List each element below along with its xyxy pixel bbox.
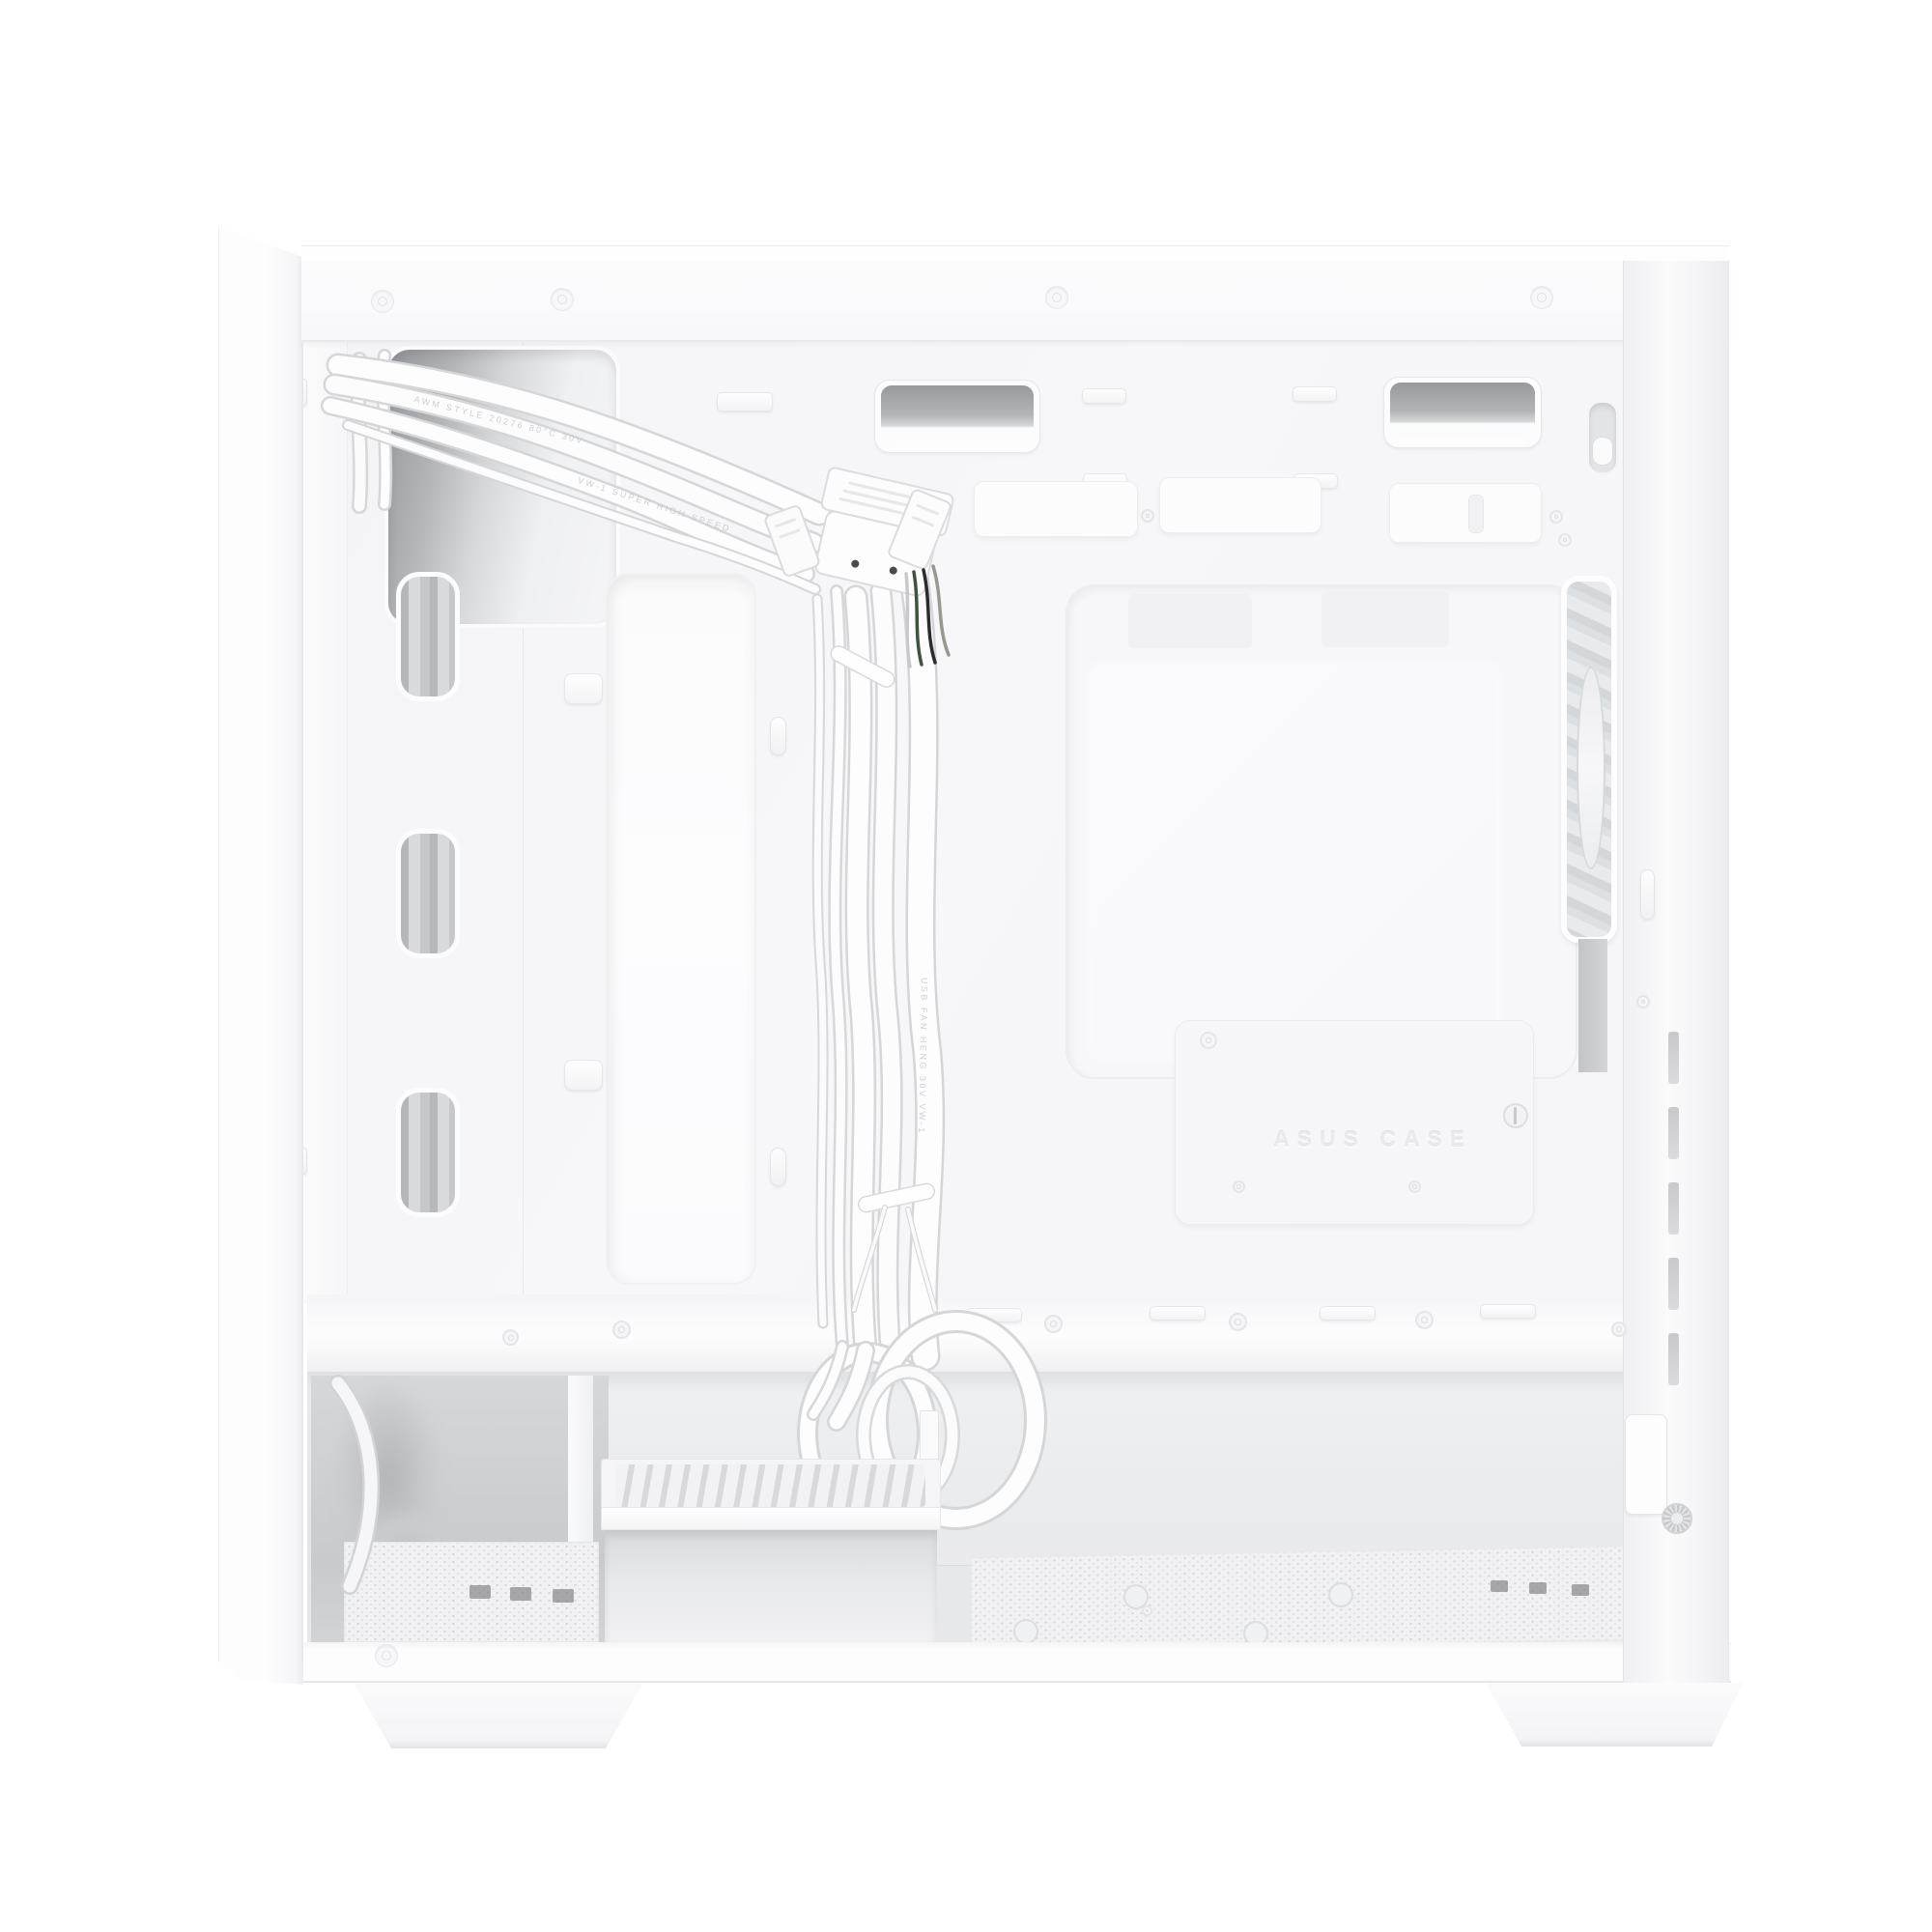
rivet xyxy=(1530,286,1553,309)
bottom-frame xyxy=(290,1642,1731,1683)
thumbscrew-center xyxy=(1670,1512,1684,1525)
pci-slot-cover xyxy=(1625,1414,1667,1515)
pci-vent-slot xyxy=(1668,1107,1679,1159)
front-panel xyxy=(218,222,303,1685)
rivet xyxy=(375,1644,398,1667)
drive-cage-shelf-slots xyxy=(616,1464,925,1507)
pci-vent-slot xyxy=(1668,1333,1679,1385)
drive-cage-face xyxy=(605,1530,937,1642)
pci-vent-slot xyxy=(1668,1258,1679,1310)
top-frame-lip xyxy=(301,245,1729,261)
front-panel-edge-line xyxy=(301,259,303,1662)
rivet xyxy=(551,288,574,311)
case-foot-left xyxy=(354,1683,643,1748)
drive-cage-lip xyxy=(601,1507,941,1530)
rear-pill-slot xyxy=(1640,869,1655,920)
rear-screw xyxy=(1611,1321,1627,1337)
rivet xyxy=(371,290,394,313)
rear-screw xyxy=(1636,995,1650,1009)
rivet xyxy=(1045,286,1068,309)
top-frame xyxy=(301,261,1729,342)
pci-vent-slot xyxy=(1668,1032,1679,1084)
pci-vent-slot xyxy=(1668,1182,1679,1235)
case-foot-right xyxy=(1486,1683,1743,1747)
product-photo-white-pc-case: ASUS CASE xyxy=(0,0,1932,1932)
